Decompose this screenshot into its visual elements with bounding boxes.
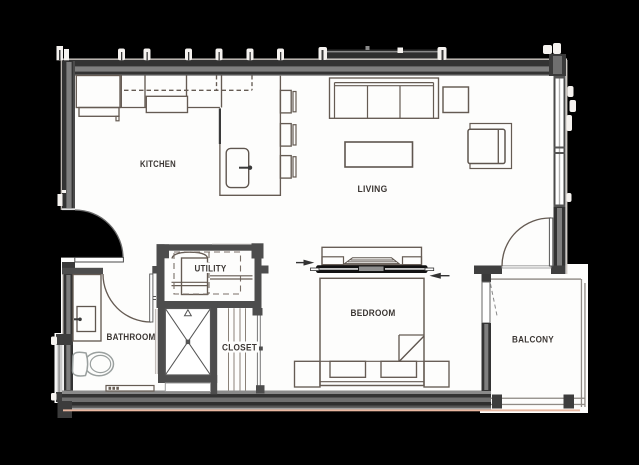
svg-text:BATHROOM: BATHROOM — [107, 332, 156, 343]
svg-text:BEDROOM: BEDROOM — [351, 308, 396, 319]
svg-text:LIVING: LIVING — [358, 184, 388, 195]
svg-text:CLOSET: CLOSET — [222, 343, 257, 354]
svg-text:UTILITY: UTILITY — [195, 263, 227, 274]
svg-text:BALCONY: BALCONY — [512, 334, 554, 345]
svg-text:KITCHEN: KITCHEN — [140, 159, 176, 170]
